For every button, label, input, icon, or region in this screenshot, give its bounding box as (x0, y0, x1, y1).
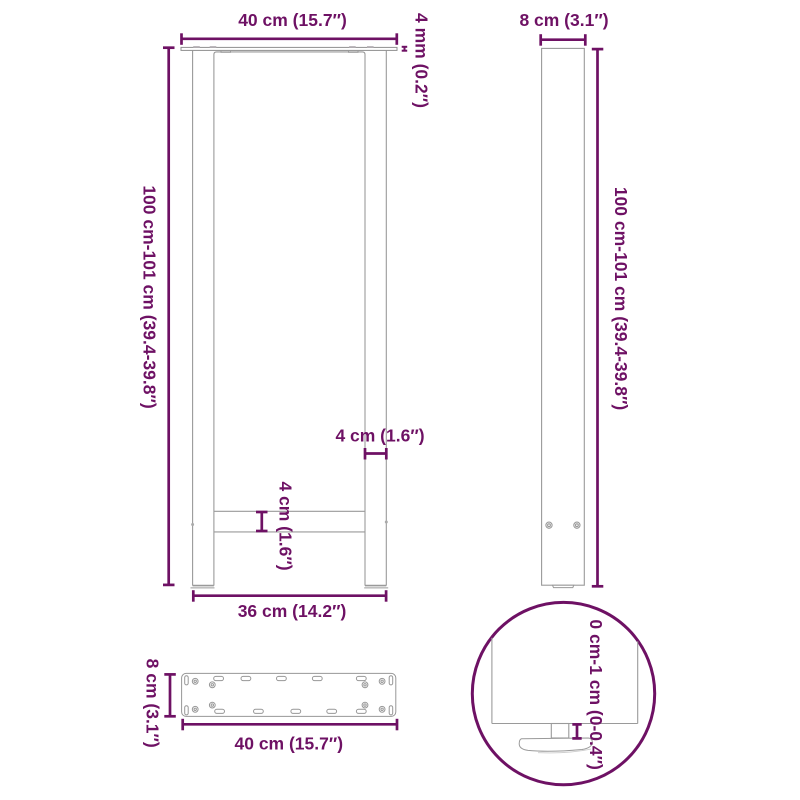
svg-text:4 cm (1.6″): 4 cm (1.6″) (276, 481, 296, 570)
svg-text:36 cm (14.2″): 36 cm (14.2″) (238, 601, 347, 621)
svg-text:100 cm-101 cm (39.4-39.8″): 100 cm-101 cm (39.4-39.8″) (140, 185, 160, 408)
svg-text:40 cm (15.7″): 40 cm (15.7″) (235, 734, 344, 754)
svg-text:8 cm (3.1″): 8 cm (3.1″) (143, 659, 163, 748)
svg-text:40 cm (15.7″): 40 cm (15.7″) (238, 10, 347, 30)
svg-text:8 cm (3.1″): 8 cm (3.1″) (519, 10, 608, 30)
svg-text:100 cm-101 cm (39.4-39.8″): 100 cm-101 cm (39.4-39.8″) (611, 187, 631, 410)
svg-text:4 mm (0.2″): 4 mm (0.2″) (412, 13, 432, 108)
svg-text:4 cm (1.6″): 4 cm (1.6″) (335, 426, 424, 446)
svg-text:0 cm-1 cm (0-0.4″): 0 cm-1 cm (0-0.4″) (586, 619, 606, 769)
